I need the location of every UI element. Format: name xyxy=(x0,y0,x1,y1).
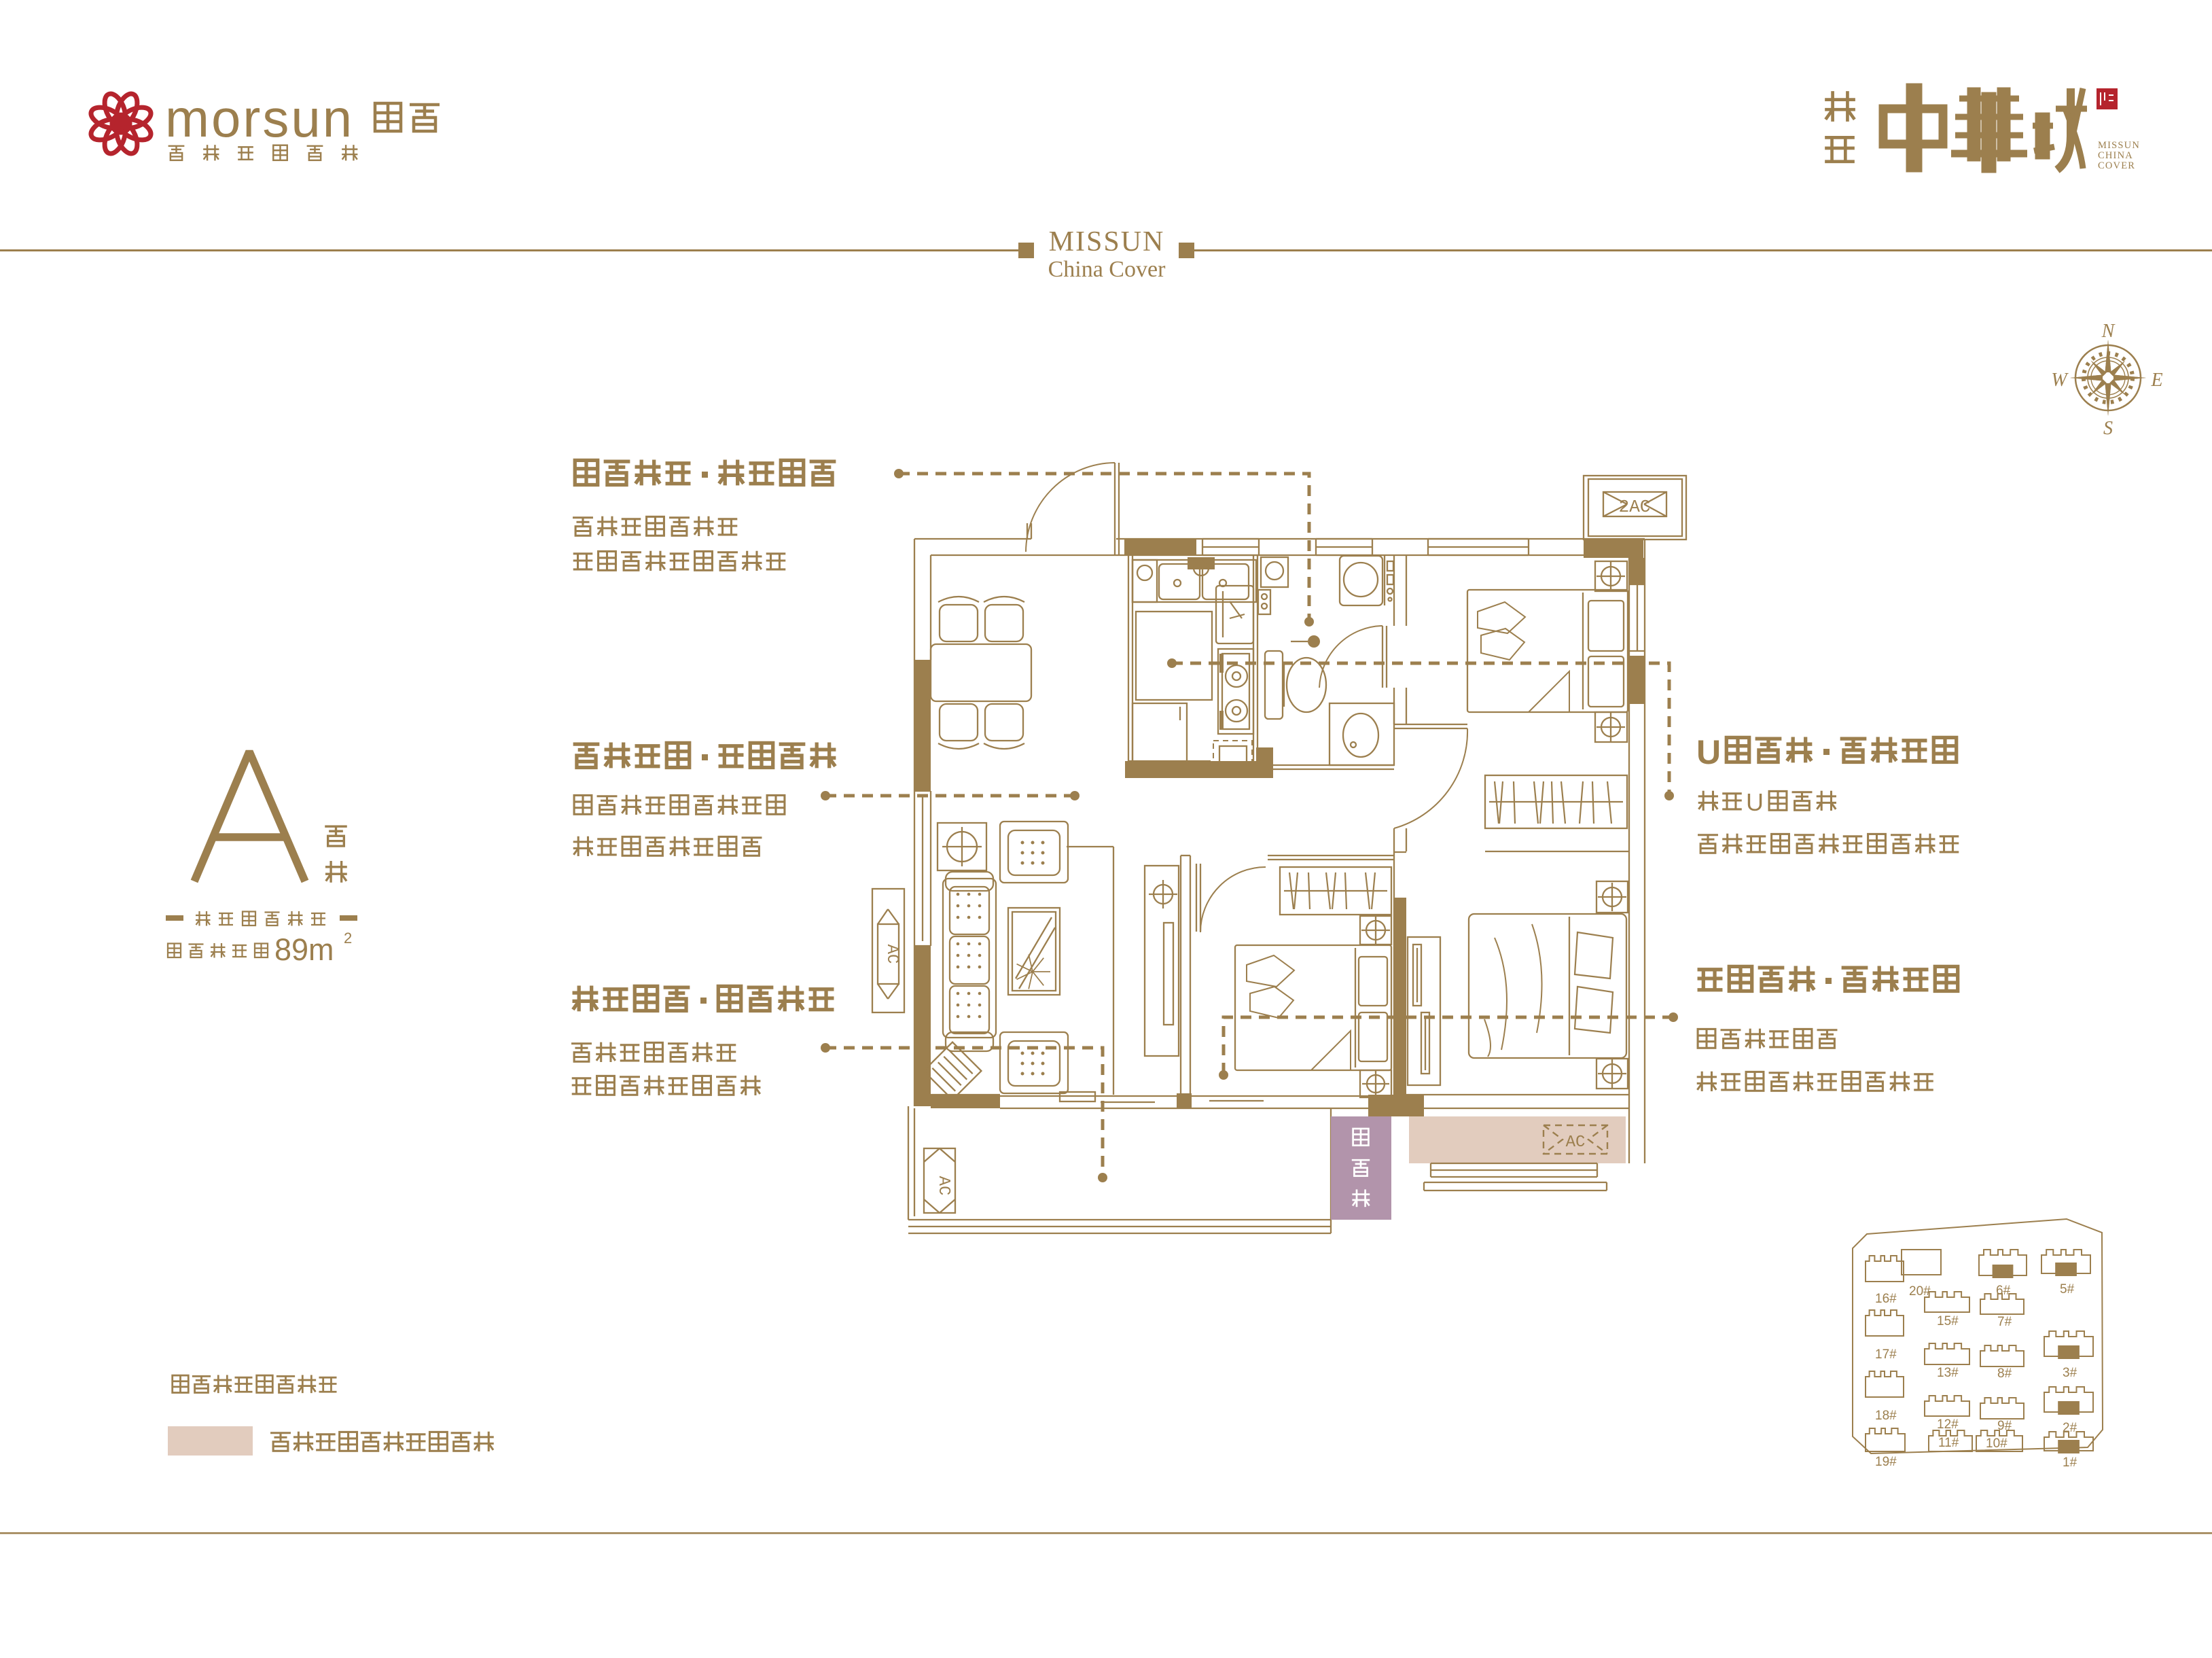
svg-text:7#: 7# xyxy=(1997,1315,2012,1329)
svg-text:AC: AC xyxy=(1566,1133,1586,1152)
svg-text:89m: 89m xyxy=(274,932,334,967)
svg-text:MISSUN: MISSUN xyxy=(2098,140,2140,151)
svg-text:U: U xyxy=(1746,788,1764,816)
svg-text:13#: 13# xyxy=(1937,1366,1959,1380)
svg-text:CHINA: CHINA xyxy=(2098,150,2133,161)
svg-text:18#: 18# xyxy=(1875,1409,1897,1423)
svg-text:17#: 17# xyxy=(1875,1347,1897,1362)
svg-text:W: W xyxy=(2051,370,2069,391)
svg-text:China Cover: China Cover xyxy=(1048,257,1166,282)
svg-text:2: 2 xyxy=(344,930,352,947)
svg-text:MISSUN: MISSUN xyxy=(1049,226,1165,258)
svg-text:1#: 1# xyxy=(2063,1456,2077,1470)
svg-text:E: E xyxy=(2150,370,2162,391)
svg-text:morsun: morsun xyxy=(165,88,354,148)
svg-text:19#: 19# xyxy=(1875,1455,1897,1469)
svg-text:8#: 8# xyxy=(1997,1366,2012,1381)
svg-text:3#: 3# xyxy=(2063,1366,2077,1380)
svg-text:N: N xyxy=(2101,321,2116,342)
svg-text:11#: 11# xyxy=(1938,1436,1959,1450)
svg-text:AC: AC xyxy=(934,1176,952,1196)
svg-text:15#: 15# xyxy=(1937,1314,1959,1328)
svg-text:10#: 10# xyxy=(1986,1436,2008,1451)
svg-text:16#: 16# xyxy=(1875,1292,1897,1306)
svg-text:5#: 5# xyxy=(2060,1282,2075,1297)
svg-text:2AC: 2AC xyxy=(1619,497,1651,517)
svg-text:20#: 20# xyxy=(1909,1284,1931,1299)
svg-text:2#: 2# xyxy=(2063,1421,2077,1435)
svg-text:12#: 12# xyxy=(1937,1417,1959,1432)
svg-text:S: S xyxy=(2103,418,2113,439)
svg-text:U: U xyxy=(1696,733,1721,771)
svg-text:AC: AC xyxy=(882,945,901,964)
svg-text:COVER: COVER xyxy=(2098,160,2135,171)
